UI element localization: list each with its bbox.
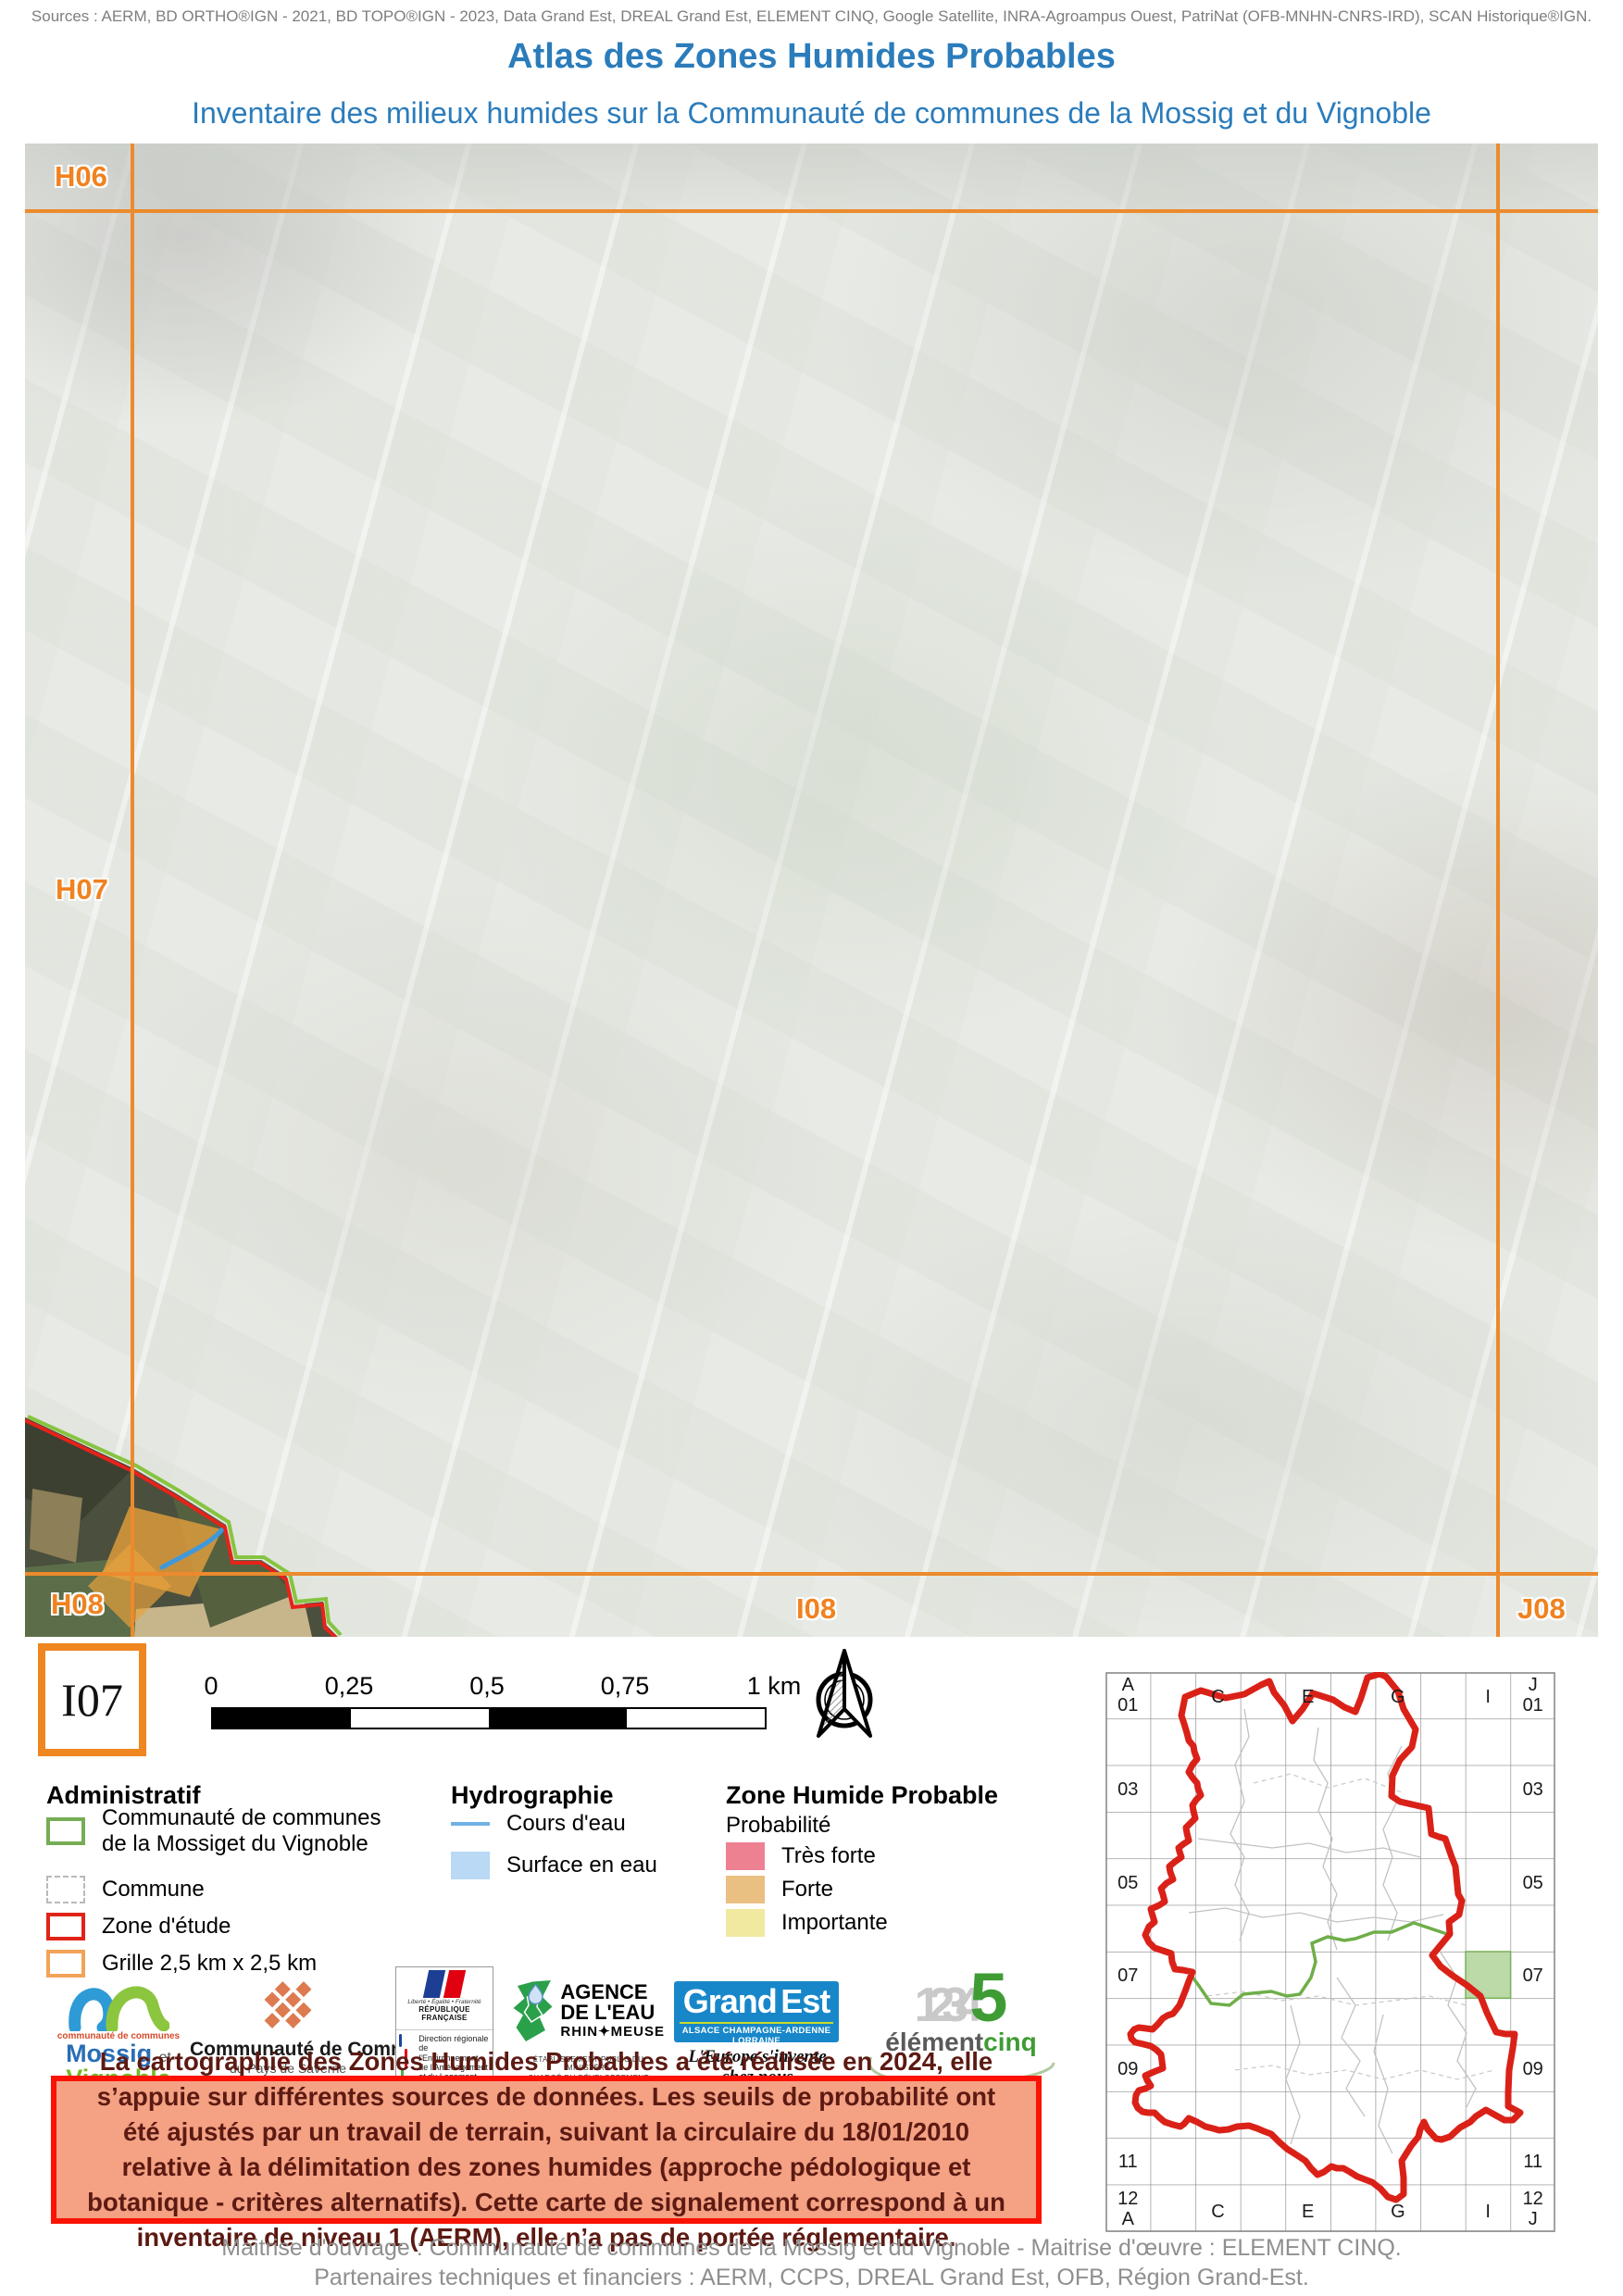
legend-label: Commune [102,1877,205,1903]
surface-eau-swatch [451,1852,490,1879]
north-arrow-icon [808,1648,880,1748]
rf-motto: Liberté • Égalité • Fraternité [396,1999,493,2005]
legend-label: de la Mossiget du Vignoble [102,1831,368,1856]
tile-code: I07 [61,1673,123,1727]
legend-label: Surface en eau [506,1853,657,1878]
overview-label: 07 [1117,1965,1138,1986]
overview-label: 09 [1523,2059,1543,2079]
page-title: Atlas des Zones Humides Probables [0,37,1623,77]
overview-label: 12 [1523,2189,1543,2209]
overview-label: G [1391,2202,1405,2222]
overview-label: 07 [1523,1965,1543,1986]
legend-item-forte: Forte [726,1876,833,1903]
legend-label: Forte [781,1877,833,1903]
overview-label: 12 [1117,2189,1138,2209]
sources-line: Sources : AERM, BD ORTHO®IGN - 2021, BD … [0,7,1623,26]
legend-zhp-subtitle: Probabilité [726,1813,830,1839]
commune-swatch [46,1876,85,1903]
saverne-logo-icon [256,1974,320,2039]
overview-label: C [1211,1687,1224,1707]
grid-label-h06: H06 [55,160,107,193]
map-grid-hline-top [25,209,1598,213]
element-digits: 1234 [915,1978,970,2032]
overview-label: 01 [1117,1695,1138,1716]
rf-republique: RÉPUBLIQUE FRANÇAISE [396,2005,493,2022]
footer-line2: Partenaires techniques et financiers : A… [0,2265,1623,2291]
grid-label-h08: H08 [51,1588,104,1621]
map-grid-vline-left [131,143,134,1637]
legend-label: Communauté de communes [102,1805,381,1830]
agence-basin: RHIN✦MEUSE [560,2023,665,2040]
french-flag-icon [424,1970,465,1998]
scalebar-segment [627,1709,765,1728]
legend-item-commune: Commune [46,1876,205,1903]
overview-label: G [1391,1687,1405,1707]
communaute-swatch [46,1817,85,1845]
grand-est-word: Est [780,1982,830,2020]
tres-forte-swatch [726,1842,765,1870]
element-cinq-digits: 12345 [859,1970,1063,2029]
agence-name: AGENCE [560,1982,665,2003]
satellite-map[interactable]: H06 H07 H08 I08 J08 [25,143,1598,1637]
element-five: 5 [969,1959,1007,2036]
legend-item-surface-eau: Surface en eau [451,1852,657,1879]
grand-est-box: Grand Est ALSACE CHAMPAGNE-ARDENNE LORRA… [674,1981,839,2042]
legend-label: Grille 2,5 km x 2,5 km [102,1951,317,1977]
scalebar-tick: 0 [204,1672,218,1701]
overview-label: 09 [1117,2059,1138,2079]
overview-label: 05 [1117,1873,1138,1893]
rf-top: Liberté • Égalité • Fraternité RÉPUBLIQU… [396,1970,493,2030]
importante-swatch [726,1909,765,1937]
overview-label: C [1211,2202,1224,2222]
forte-swatch [726,1876,765,1903]
scalebar-labels: 0 0,25 0,5 0,75 1 km [119,1672,859,1700]
legend-label: Cours d'eau [506,1811,626,1837]
overview-label: 05 [1523,1873,1543,1893]
legend-hydrographie-title: Hydrographie [451,1781,614,1810]
map-texture-band [25,143,1598,214]
overview-label: I [1485,1687,1491,1707]
overview-label: J [1529,2209,1538,2229]
page-subtitle: Inventaire des milieux humides sur la Co… [0,96,1623,131]
legend-item-communaute: Communauté de communes de la Mossiget du… [46,1805,381,1857]
agence-name: DE L'EAU [560,2003,665,2023]
legend-label: Très forte [781,1843,876,1869]
scalebar-tick: 0,25 [325,1672,374,1701]
grid-label-h07: H07 [56,873,108,906]
cours-eau-swatch [451,1822,490,1826]
overview-label: 03 [1523,1779,1543,1800]
notice-text: La cartographie des Zones Humides Probab… [77,2044,1016,2255]
legend-item-cours-eau: Cours d'eau [451,1811,626,1837]
overview-label: 01 [1523,1695,1543,1716]
legend-zhp-title: Zone Humide Probable [726,1781,998,1810]
zone-etude-swatch [46,1913,85,1940]
footer-line1: Maitrise d'ouvrage : Communauté de commu… [0,2235,1623,2262]
scalebar [211,1707,767,1729]
map-grid-vline-right [1496,143,1500,1637]
grand-est-strip: ALSACE CHAMPAGNE-ARDENNE LORRAINE [680,2022,833,2046]
overview-label: 11 [1523,2152,1542,2172]
map-grid-hline-bottom [25,1572,1598,1576]
scalebar-segment [489,1709,627,1728]
agence-eau-icon [512,1968,555,2053]
dreal-line: Direction régionale [418,2034,490,2043]
legend-item-tres-forte: Très forte [726,1842,876,1870]
overview-label: 03 [1117,1779,1138,1800]
tile-code-box: I07 [38,1643,146,1756]
overview-label: I [1485,2202,1491,2222]
legend-item-zone-etude: Zone d'étude [46,1913,231,1940]
overview-map[interactable]: A 01 J 01 C E G I 03 05 07 09 11 03 05 0… [1105,1672,1555,2233]
overview-label: J [1529,1675,1538,1695]
scalebar-tick: 0,5 [469,1672,505,1701]
scalebar-segment [213,1709,351,1728]
grand-est-word: Grand [683,1982,777,2020]
legend-label: Importante [781,1910,888,1936]
legend-item-importante: Importante [726,1909,888,1937]
overview-label: E [1302,1687,1314,1707]
overview-label: A [1122,1675,1135,1695]
overview-label: E [1302,2202,1314,2222]
mossig-logo-icon [68,1974,169,2031]
grid-label-i08: I08 [796,1592,836,1626]
grid-label-j08: J08 [1517,1592,1566,1626]
legend-label: Zone d'étude [102,1914,231,1940]
scalebar-segment [351,1709,489,1728]
notice-box: La cartographie des Zones Humides Probab… [51,2076,1042,2224]
overview-label: A [1122,2209,1135,2229]
scalebar-tick: 0,75 [601,1672,650,1701]
overview-label: 11 [1118,2152,1138,2172]
scalebar-tick: 1 km [747,1672,802,1701]
